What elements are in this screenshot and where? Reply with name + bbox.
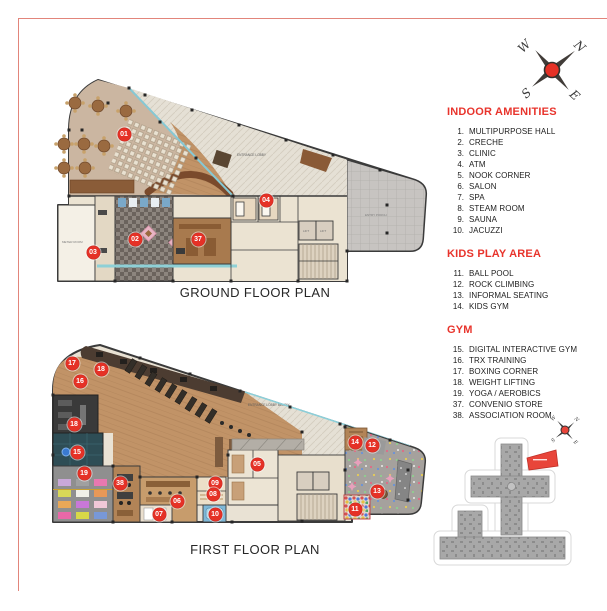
mini-compass-s: S	[550, 437, 557, 444]
page-frame-top	[18, 18, 607, 19]
entry-porch-label: ENTRY PORCH	[365, 213, 387, 217]
site-key-plan: N W E S	[428, 412, 607, 594]
legend-item: 1.MULTIPURPOSE HALL	[447, 126, 605, 137]
highlight-text-mark	[533, 459, 547, 460]
key-plan-hub	[508, 483, 516, 491]
legend-item: 18.WEIGHT LIFTING	[447, 377, 605, 388]
legend-item: 9.SAUNA	[447, 214, 605, 225]
creche	[115, 196, 173, 281]
lift-label: LIFT	[303, 229, 309, 233]
legend-item: 10.JACUZZI	[447, 225, 605, 236]
legend-item: 19.YOGA / AEROBICS	[447, 388, 605, 399]
plan-marker: 11	[349, 503, 362, 516]
legend-item: 11.BALL POOL	[447, 268, 605, 279]
mini-compass-e: E	[571, 439, 579, 447]
plan-marker: 16	[74, 375, 87, 388]
compass-w: W	[515, 36, 535, 56]
legend-item: 13.INFORMAL SEATING	[447, 290, 605, 301]
legend-title: KIDS PLAY AREA	[447, 248, 605, 260]
plan-marker: 07	[153, 508, 166, 521]
legend-item: 3.CLINIC	[447, 148, 605, 159]
legend-item: 14.KIDS GYM	[447, 301, 605, 312]
plan-marker: 05	[251, 458, 264, 471]
legend-item: 12.ROCK CLIMBING	[447, 279, 605, 290]
lift-core: LIFT LIFT	[299, 221, 338, 279]
plan-marker: 17	[66, 357, 79, 370]
legend-item: 7.SPA	[447, 192, 605, 203]
entrance-lobby-label: ENTRANCE LOBBY	[237, 153, 267, 157]
mini-compass-n: N	[572, 415, 580, 423]
legend-section-kids-play-area: KIDS PLAY AREA 11.BALL POOL 12.ROCK CLIM…	[447, 248, 605, 312]
plan-marker: 08	[207, 488, 220, 501]
legend: INDOOR AMENITIES 1.MULTIPURPOSE HALL 2.C…	[447, 106, 605, 433]
plan-marker: 38	[114, 477, 127, 490]
legend-item: 8.STEAM ROOM	[447, 203, 605, 214]
legend-item: 5.NOOK CORNER	[447, 170, 605, 181]
plan-marker: 04	[260, 194, 273, 207]
first-floor-plan: ENTRANCE LOBBY BELOW	[33, 333, 437, 529]
first-core	[278, 455, 345, 521]
skylight	[232, 439, 304, 450]
meter-room-label: METER ROOM	[62, 240, 83, 244]
plan-marker: 03	[87, 246, 100, 259]
ground-floor-title: GROUND FLOOR PLAN	[105, 285, 405, 300]
plan-marker: 01	[118, 128, 131, 141]
lift-label: LIFT	[320, 229, 326, 233]
compass-e: E	[566, 86, 583, 103]
legend-item: 17.BOXING CORNER	[447, 366, 605, 377]
sheet: N W E S	[0, 0, 607, 611]
legend-item: 37.CONVENIO STORE	[447, 399, 605, 410]
plan-marker: 06	[171, 495, 184, 508]
page-frame-left	[18, 18, 19, 591]
plan-marker: 13	[371, 485, 384, 498]
compass-s: S	[519, 85, 534, 101]
first-floor-title: FIRST FLOOR PLAN	[105, 542, 405, 557]
legend-section-indoor-amenities: INDOOR AMENITIES 1.MULTIPURPOSE HALL 2.C…	[447, 106, 605, 236]
clinic-room	[95, 196, 115, 281]
compass-center	[545, 63, 560, 78]
plan-marker: 14	[349, 436, 362, 449]
legend-item: 2.CRECHE	[447, 137, 605, 148]
plan-marker: 19	[78, 467, 91, 480]
interactive-ball	[62, 448, 70, 456]
legend-item: 4.ATM	[447, 159, 605, 170]
legend-item: 6.SALON	[447, 181, 605, 192]
plan-marker: 10	[209, 508, 222, 521]
legend-title: GYM	[447, 324, 605, 336]
legend-item: 16.TRX TRAINING	[447, 355, 605, 366]
legend-item: 15.DIGITAL INTERACTIVE GYM	[447, 344, 605, 355]
compass-rose: N W E S	[500, 22, 600, 117]
bar-counter	[70, 180, 134, 193]
creche-lockers	[118, 198, 170, 207]
legend-title: INDOOR AMENITIES	[447, 106, 605, 118]
mini-compass: N W E S	[550, 414, 581, 446]
legend-section-gym: GYM 15.DIGITAL INTERACTIVE GYM 16.TRX TR…	[447, 324, 605, 421]
mini-compass-w: W	[550, 414, 558, 422]
plan-marker: 18	[68, 418, 81, 431]
plan-marker: 02	[129, 233, 142, 246]
plan-marker: 37	[192, 233, 205, 246]
wood-partition	[215, 437, 223, 467]
plan-marker: 18	[95, 363, 108, 376]
plan-marker: 15	[71, 446, 84, 459]
plan-marker: 12	[366, 439, 379, 452]
